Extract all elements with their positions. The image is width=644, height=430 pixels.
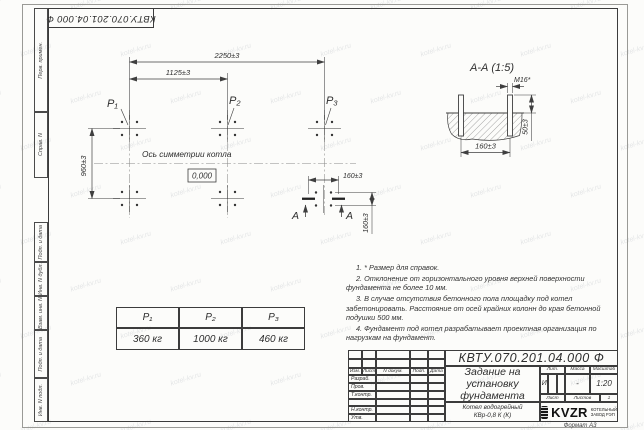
sig-cell [376, 399, 410, 407]
sig-cell [428, 383, 445, 391]
sig-cell [410, 414, 428, 422]
bolt-group-p2-bottom [211, 185, 244, 212]
row-razrab: Разраб. [348, 375, 376, 383]
change-cell [428, 350, 445, 359]
axis-label: Ось симметрии котла [142, 149, 232, 159]
change-cell [348, 359, 362, 368]
sig-cell [428, 375, 445, 383]
sig-cell [376, 414, 410, 422]
sig-cell [428, 391, 445, 399]
col-podp: Подп. [410, 368, 428, 376]
dim-bolt-y: 160±3 [363, 213, 370, 233]
change-cell [348, 350, 362, 359]
note-2: 2. Отклонение от горизонтального уровня … [346, 274, 630, 293]
load-label-p3: P₃ [326, 95, 338, 107]
note-3: 3. В случае отсутствия бетонного пола пл… [346, 294, 630, 323]
loads-table-value-p1: 360 кг [116, 328, 179, 350]
sheet-label: Лист [540, 394, 565, 402]
sig-cell [410, 399, 428, 407]
sig-cell [376, 406, 410, 414]
dim-overall: 2250±3 [214, 51, 241, 60]
dim-protrusion: 50±3 [523, 119, 530, 135]
sig-cell [410, 406, 428, 414]
mass-label: Масса [565, 366, 590, 374]
row-blank [348, 399, 376, 407]
sig-cell [376, 375, 410, 383]
sheets-value: 1 [600, 394, 618, 402]
title-block-title: Задание на установку фундамента [445, 366, 540, 403]
loads-table-value-p3: 460 кг [242, 328, 305, 350]
sheets-label: Листов [565, 394, 600, 402]
section-title: А-А (1:5) [469, 62, 514, 74]
col-data: Дата [428, 368, 445, 376]
note-4: 4. Фундамент под котел разрабатывает про… [346, 324, 630, 343]
mass-value: - [565, 374, 590, 395]
scale-label: Масштаб [590, 366, 618, 374]
lit-cell [557, 374, 565, 395]
section-view: А-А (1:5) M16* 50±3 160±3 [446, 62, 536, 157]
loads-table-header-p1: P₁ [116, 307, 179, 328]
kvzr-logo-text: KVZR [551, 405, 588, 420]
loads-table-value-p2: 1000 кг [179, 328, 242, 350]
sig-cell [428, 414, 445, 422]
sig-cell [410, 391, 428, 399]
dim-depth: 960±3 [79, 155, 88, 177]
sig-cell [376, 391, 410, 399]
title-block-product: Котел водогрейный КВр-0,8 К (К) [445, 402, 540, 422]
col-list: Лист [362, 368, 376, 376]
row-utv: Утв. [348, 414, 376, 422]
sig-cell [376, 383, 410, 391]
kvzr-logo-icon [541, 406, 548, 419]
change-cell [410, 350, 428, 359]
title-block: Изм. Лист N докум. Подп. Дата Разраб. Пр… [348, 350, 618, 422]
logo-cell: KVZR КОТЕЛЬНЫЙ ЗАВОД РЭП [540, 402, 618, 422]
sig-cell [410, 383, 428, 391]
level-mark: 0,000 [192, 172, 213, 181]
row-nkontr: Н.контр. [348, 406, 376, 414]
loads-table-header-p3: P₃ [242, 307, 305, 328]
notes-block: 1. * Размер для справок. 2. Отклонение о… [346, 263, 630, 344]
row-tkontr: Т.контр. [348, 391, 376, 399]
load-label-p2: P₂ [229, 95, 241, 107]
anchor-bolt-left [459, 95, 464, 136]
thread-label: M16* [514, 77, 531, 84]
note-1: 1. * Размер для справок. [346, 263, 630, 273]
loads-table-header-p2: P₂ [179, 307, 242, 328]
kvzr-logo-subtitle: КОТЕЛЬНЫЙ ЗАВОД РЭП [591, 407, 617, 418]
section-cut-detail: А А 160±3 160±3 [291, 173, 376, 234]
loads-table: P₁ P₂ P₃ 360 кг 1000 кг 460 кг [116, 307, 305, 350]
lit-label: Лит. [540, 366, 565, 374]
col-izm: Изм. [348, 368, 362, 376]
dim-bolt-x: 160±3 [343, 173, 363, 180]
change-cell [362, 359, 376, 368]
plan-centerlines [94, 110, 356, 218]
row-prov: Пров. [348, 383, 376, 391]
load-label-p1: P₁ [107, 98, 118, 110]
scale-value: 1:20 [590, 374, 618, 395]
sig-cell [428, 399, 445, 407]
section-letter-right: А [345, 210, 353, 222]
col-ndokum: N докум. [376, 368, 410, 376]
format-label: Формат А3 [520, 423, 640, 429]
dim-half: 1125±3 [166, 68, 191, 77]
change-cell [376, 350, 410, 359]
change-cell [428, 359, 445, 368]
plan-view: 2250±3 1125±3 960±3 P₁ P₂ P₃ Ось симметр… [79, 51, 376, 234]
sig-cell [410, 375, 428, 383]
change-cell [362, 350, 376, 359]
title-block-doc-number: КВТУ.070.201.04.000 Ф [445, 350, 618, 366]
section-letter-left: А [291, 210, 299, 222]
change-cell [376, 359, 410, 368]
anchor-bolt-right [508, 95, 513, 136]
sig-cell [428, 406, 445, 414]
lit-value: И [540, 374, 548, 395]
change-cell [410, 359, 428, 368]
lit-cell [548, 374, 556, 395]
drawing-sheet: kotel-kv.rukotel-kv.rukotel-kv.rukotel-k… [0, 0, 644, 430]
dim-spacing: 160±3 [475, 142, 497, 151]
